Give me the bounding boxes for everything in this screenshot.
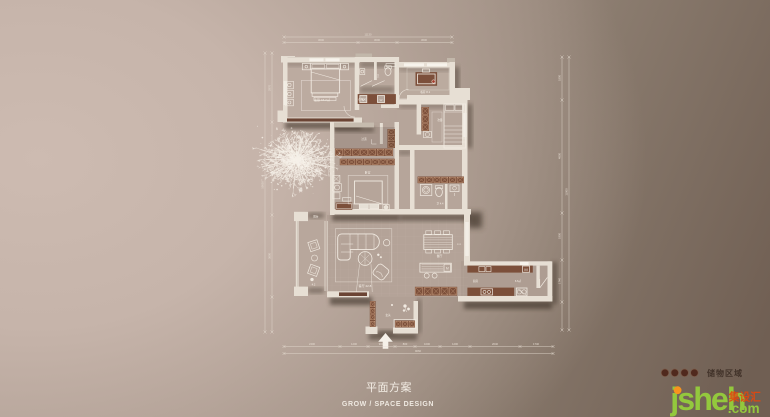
svg-text:卫: 卫: [377, 75, 380, 78]
svg-text:3000: 3000: [374, 38, 380, 42]
svg-text:卫 4.4: 卫 4.4: [437, 202, 444, 206]
svg-text:4600: 4600: [558, 153, 562, 159]
svg-text:卧室: 卧室: [365, 171, 371, 175]
svg-text:餐厅: 餐厅: [437, 254, 443, 258]
svg-text:1200: 1200: [351, 342, 357, 346]
svg-text:3600: 3600: [318, 38, 324, 42]
svg-text:过道: 过道: [361, 137, 367, 141]
svg-text:800: 800: [403, 342, 408, 346]
svg-text:9060: 9060: [415, 349, 421, 353]
svg-text:4.2: 4.2: [312, 283, 316, 287]
svg-text:900: 900: [379, 342, 384, 346]
svg-text:1740: 1740: [533, 342, 539, 346]
svg-text:11130: 11130: [364, 33, 372, 37]
svg-text:3600: 3600: [421, 38, 427, 42]
svg-text:衣帽间: 衣帽间: [358, 97, 366, 101]
svg-text:客厅 22.8: 客厅 22.8: [359, 283, 372, 288]
svg-text:3600: 3600: [268, 253, 272, 259]
svg-text:厨房: 厨房: [473, 279, 479, 283]
svg-text:次卧: 次卧: [437, 118, 443, 122]
svg-text:2970: 2970: [268, 85, 272, 91]
svg-text:1740: 1740: [558, 278, 562, 284]
svg-text:集设汇: 集设汇: [728, 390, 761, 403]
svg-text:主卧 16.2㎡: 主卧 16.2㎡: [314, 97, 330, 102]
svg-text:11000: 11000: [565, 188, 569, 196]
svg-text:阳台: 阳台: [313, 215, 319, 219]
svg-text:6.6㎡: 6.6㎡: [515, 279, 522, 283]
svg-text:1200: 1200: [452, 342, 458, 346]
svg-text:1900: 1900: [558, 233, 562, 239]
svg-text:1000: 1000: [424, 342, 430, 346]
svg-text:2400: 2400: [309, 342, 315, 346]
svg-text:玄关: 玄关: [385, 313, 391, 317]
svg-text:M: M: [446, 266, 449, 270]
svg-text:M: M: [524, 267, 527, 272]
svg-text:书房 8.1: 书房 8.1: [420, 90, 431, 94]
svg-text:1800: 1800: [558, 75, 562, 81]
svg-text:10630: 10630: [261, 181, 265, 189]
svg-text:2040: 2040: [492, 342, 498, 346]
